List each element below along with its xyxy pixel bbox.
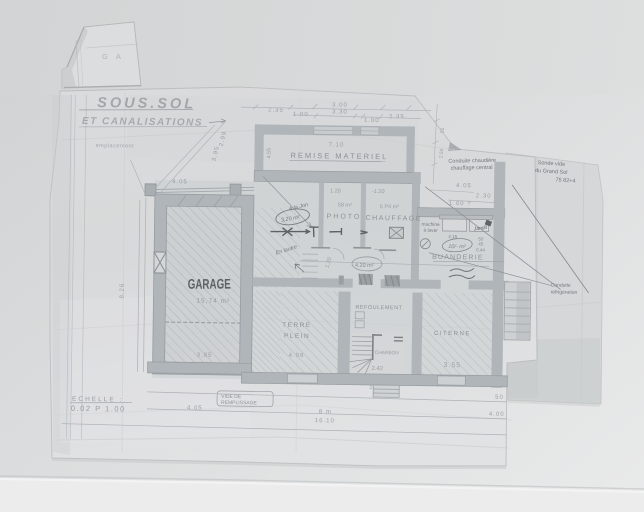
svg-text:3.30: 3.30 (332, 109, 348, 115)
svg-text:4.20 m²: 4.20 m² (355, 263, 374, 269)
svg-text:8 m: 8 m (319, 409, 332, 415)
svg-text:2.50: 2.50 (438, 148, 445, 158)
svg-text:2.42: 2.42 (371, 366, 383, 372)
svg-text:REFOULEMENT: REFOULEMENT (355, 305, 402, 312)
svg-text:REMPLISSAGE: REMPLISSAGE (221, 400, 258, 407)
svg-text:PHOTO: PHOTO (327, 213, 362, 220)
svg-text:4.08: 4.08 (289, 353, 305, 359)
svg-text:CHAUFFAGE: CHAUFFAGE (366, 215, 422, 223)
svg-text:réfrigération: réfrigération (551, 289, 578, 295)
svg-text:à laver: à laver (423, 228, 438, 234)
svg-text:4.05: 4.05 (187, 405, 203, 411)
svg-text:5 P4 m²: 5 P4 m² (380, 204, 400, 210)
svg-text:Conduite: Conduite (551, 282, 571, 288)
svg-text:0.02 P 1.00: 0.02 P 1.00 (71, 404, 126, 414)
svg-text:-1.20: -1.20 (372, 189, 385, 195)
svg-text:TERRE: TERRE (282, 322, 312, 329)
svg-text:1.00: 1.00 (364, 118, 380, 124)
svg-text:16.10: 16.10 (315, 418, 335, 424)
svg-text:1.20: 1.20 (330, 188, 341, 194)
svg-text:CITERNE: CITERNE (434, 331, 471, 338)
svg-text:chauffage central: chauffage central (450, 165, 492, 172)
svg-text:0.44: 0.44 (476, 247, 485, 252)
svg-text:45: 45 (478, 241, 484, 246)
svg-text:GA: GA (102, 52, 129, 61)
svg-text:3.85: 3.85 (197, 353, 213, 359)
svg-text:4.05: 4.05 (172, 179, 188, 185)
svg-text:8.26: 8.26 (119, 283, 125, 299)
svg-text:3.00: 3.00 (332, 102, 348, 108)
svg-text:CHARBON: CHARBON (375, 350, 400, 356)
svg-text:GARAGE: GARAGE (188, 276, 231, 292)
svg-text:4.00: 4.00 (489, 412, 505, 418)
svg-text:7.10: 7.10 (329, 142, 345, 148)
svg-text:2.35: 2.35 (389, 114, 405, 120)
svg-text:2.30: 2.30 (476, 193, 492, 199)
svg-text:machine: machine (421, 222, 440, 228)
svg-text:50: 50 (440, 127, 447, 133)
svg-text:58 m²: 58 m² (338, 202, 352, 208)
svg-text:4.05: 4.05 (456, 183, 472, 189)
svg-text:ECHELLE :: ECHELLE : (72, 396, 123, 404)
svg-text:PLEIN: PLEIN (284, 333, 310, 340)
svg-text:4.55: 4.55 (266, 148, 272, 159)
svg-text:REMISE MATERIEL: REMISE MATERIEL (290, 151, 388, 161)
svg-text:3.55: 3.55 (444, 362, 462, 369)
svg-text:2.35: 2.35 (268, 108, 284, 114)
svg-text:50: 50 (495, 395, 504, 401)
svg-text:emplacement: emplacement (96, 143, 135, 150)
svg-text:1.00 ?: 1.00 ? (449, 201, 472, 207)
svg-text:10/- m²: 10/- m² (448, 244, 466, 250)
svg-text:15,74 m²: 15,74 m² (196, 298, 230, 305)
svg-text:Conduite chaudière: Conduite chaudière (448, 158, 496, 165)
